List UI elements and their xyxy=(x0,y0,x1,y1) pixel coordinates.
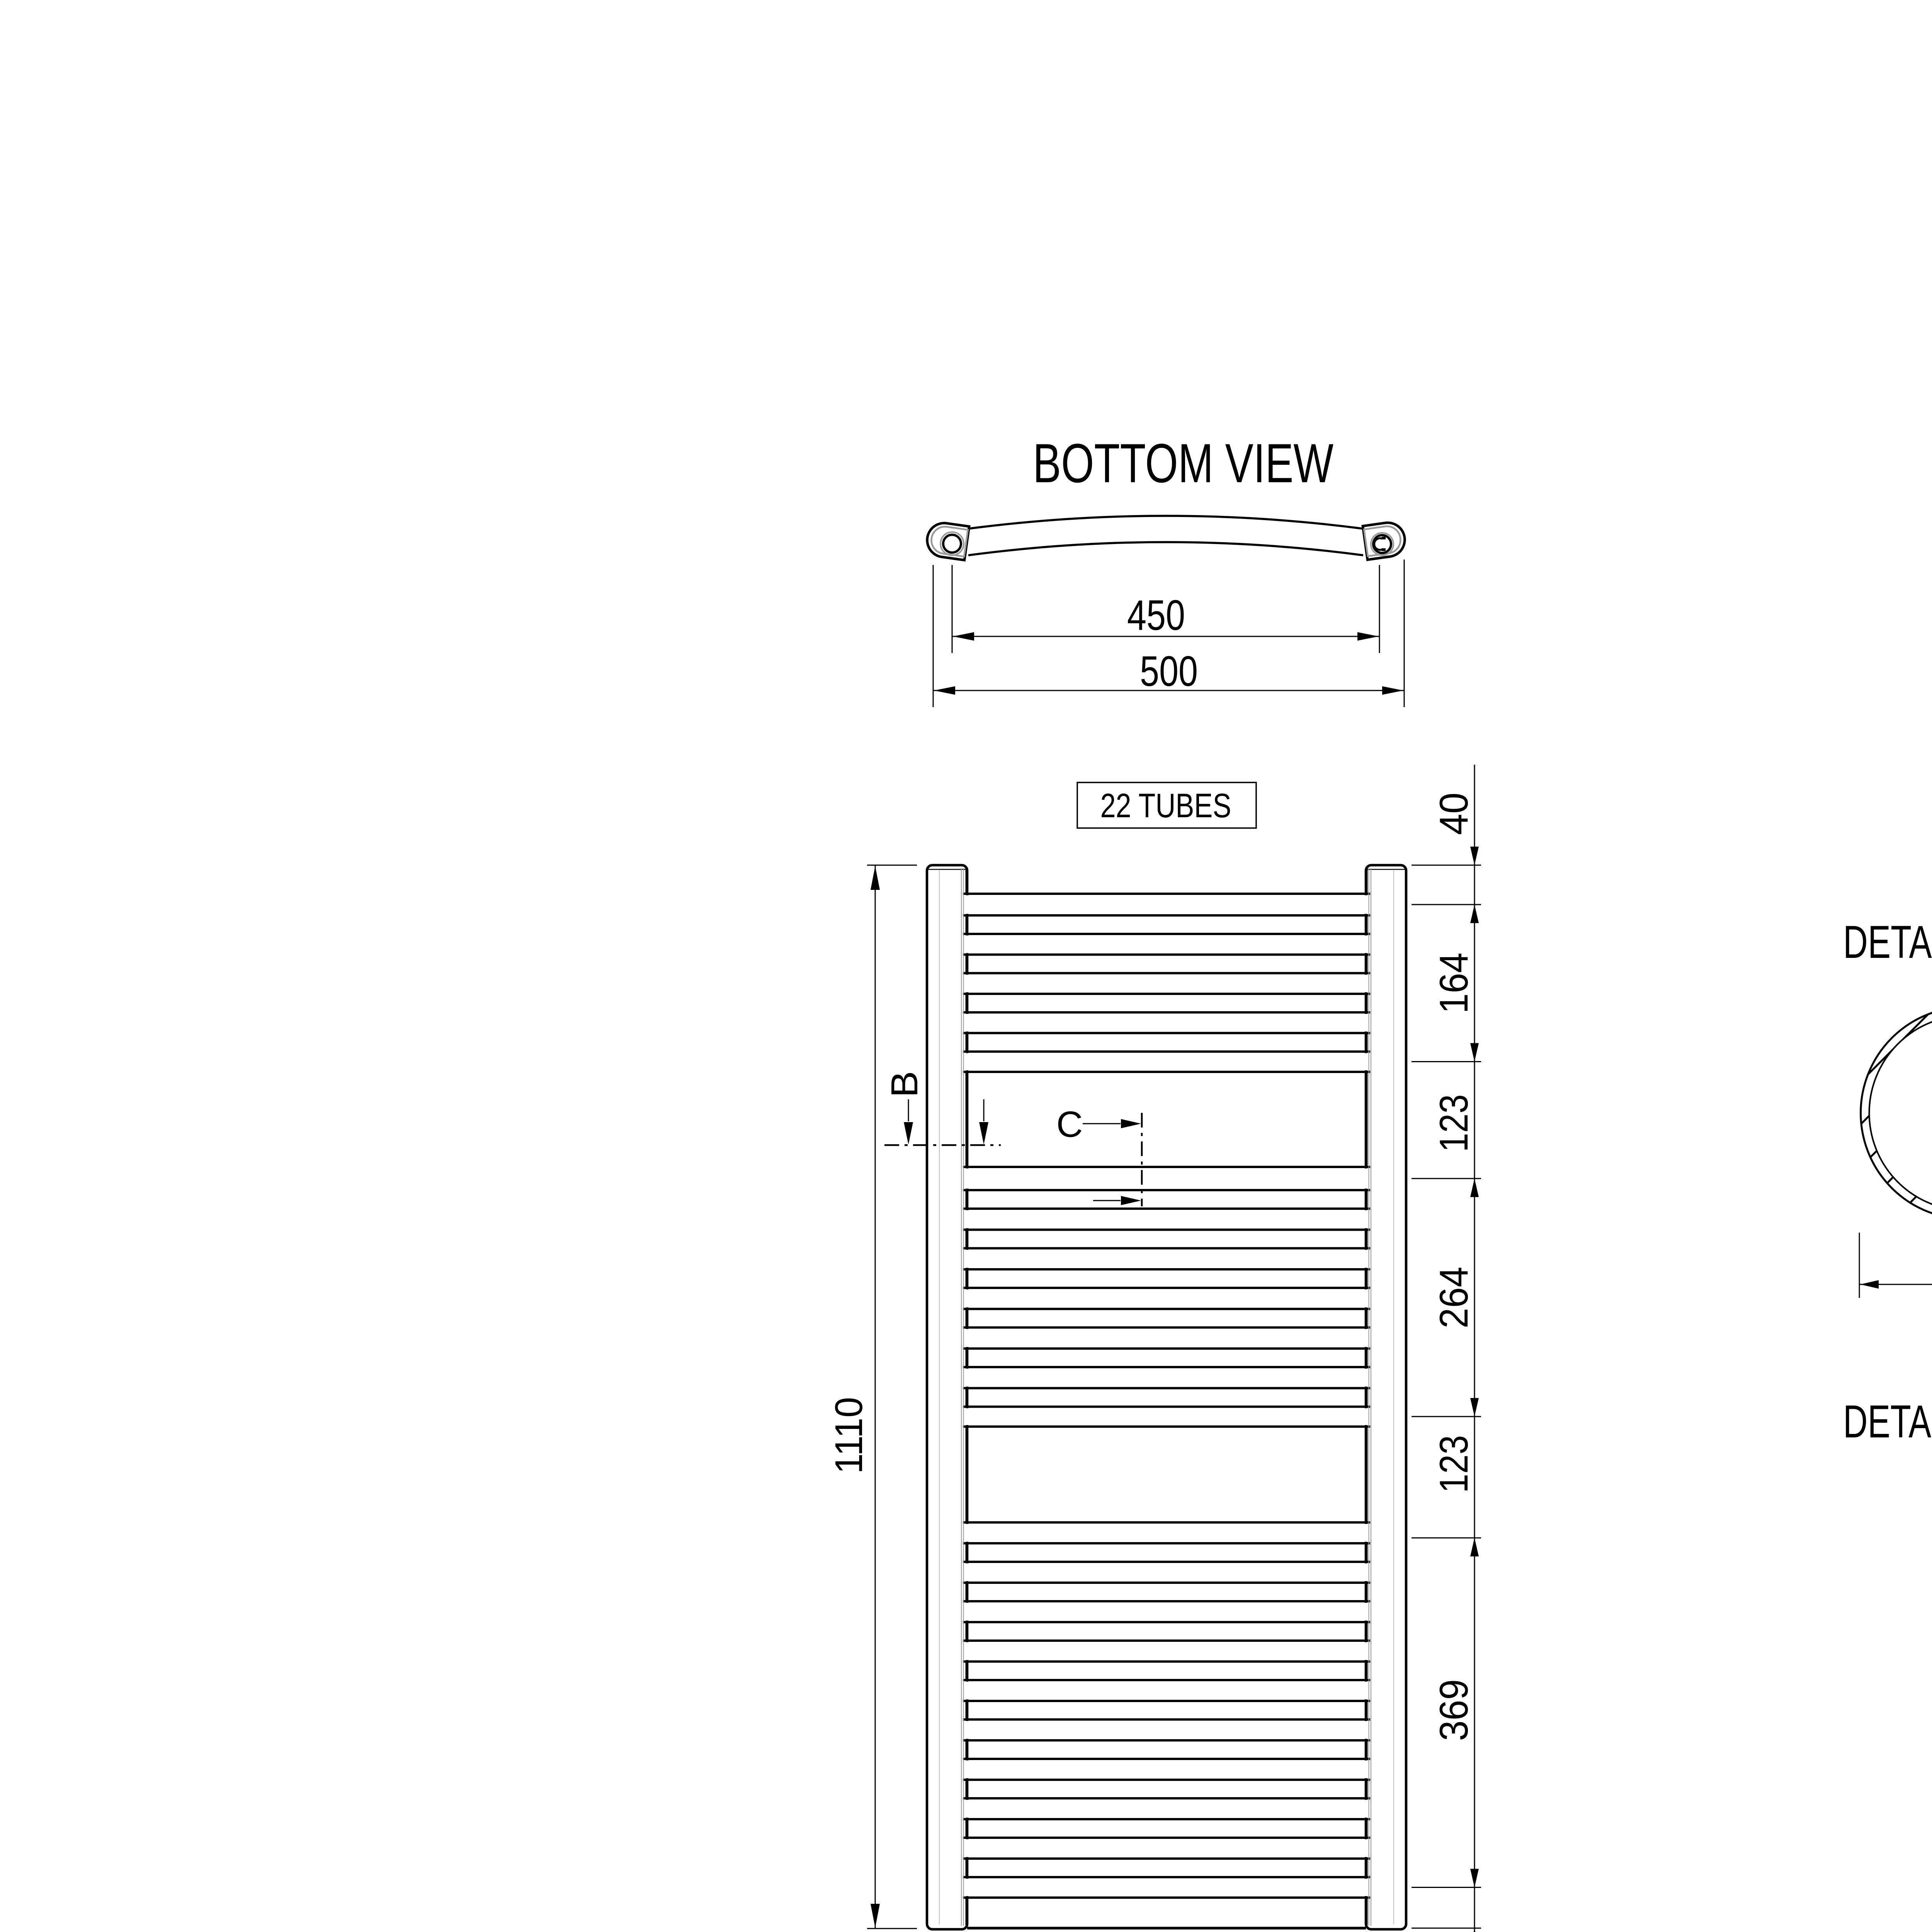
svg-text:DETAIL C - Tube Cut: DETAIL C - Tube Cut xyxy=(1843,1396,1932,1447)
svg-text:C: C xyxy=(1056,1104,1083,1145)
svg-text:500: 500 xyxy=(1140,648,1198,695)
svg-text:BOTTOM VIEW: BOTTOM VIEW xyxy=(1033,433,1333,494)
svg-text:40: 40 xyxy=(1432,793,1476,835)
svg-text:1110: 1110 xyxy=(827,1397,871,1474)
svg-text:DETAIL B - Profile Cut: DETAIL B - Profile Cut xyxy=(1843,916,1932,968)
svg-text:123: 123 xyxy=(1432,1435,1476,1493)
svg-text:450: 450 xyxy=(1127,592,1185,639)
svg-text:164: 164 xyxy=(1432,952,1476,1014)
svg-text:369: 369 xyxy=(1432,1679,1476,1741)
svg-text:B: B xyxy=(883,1071,925,1098)
svg-text:22 TUBES: 22 TUBES xyxy=(1100,786,1231,825)
svg-text:264: 264 xyxy=(1432,1267,1476,1328)
svg-text:123: 123 xyxy=(1432,1094,1476,1152)
